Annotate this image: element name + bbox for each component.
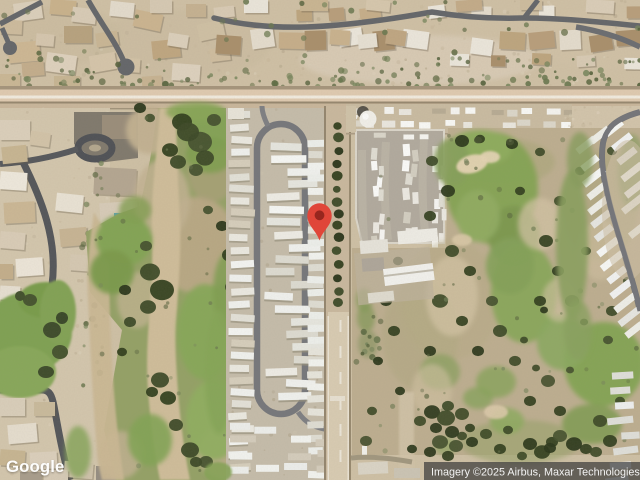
svg-text:Google: Google [6,457,64,476]
svg-text:Imagery ©2025 Airbus, Maxar Te: Imagery ©2025 Airbus, Maxar Technologies [431,467,640,479]
